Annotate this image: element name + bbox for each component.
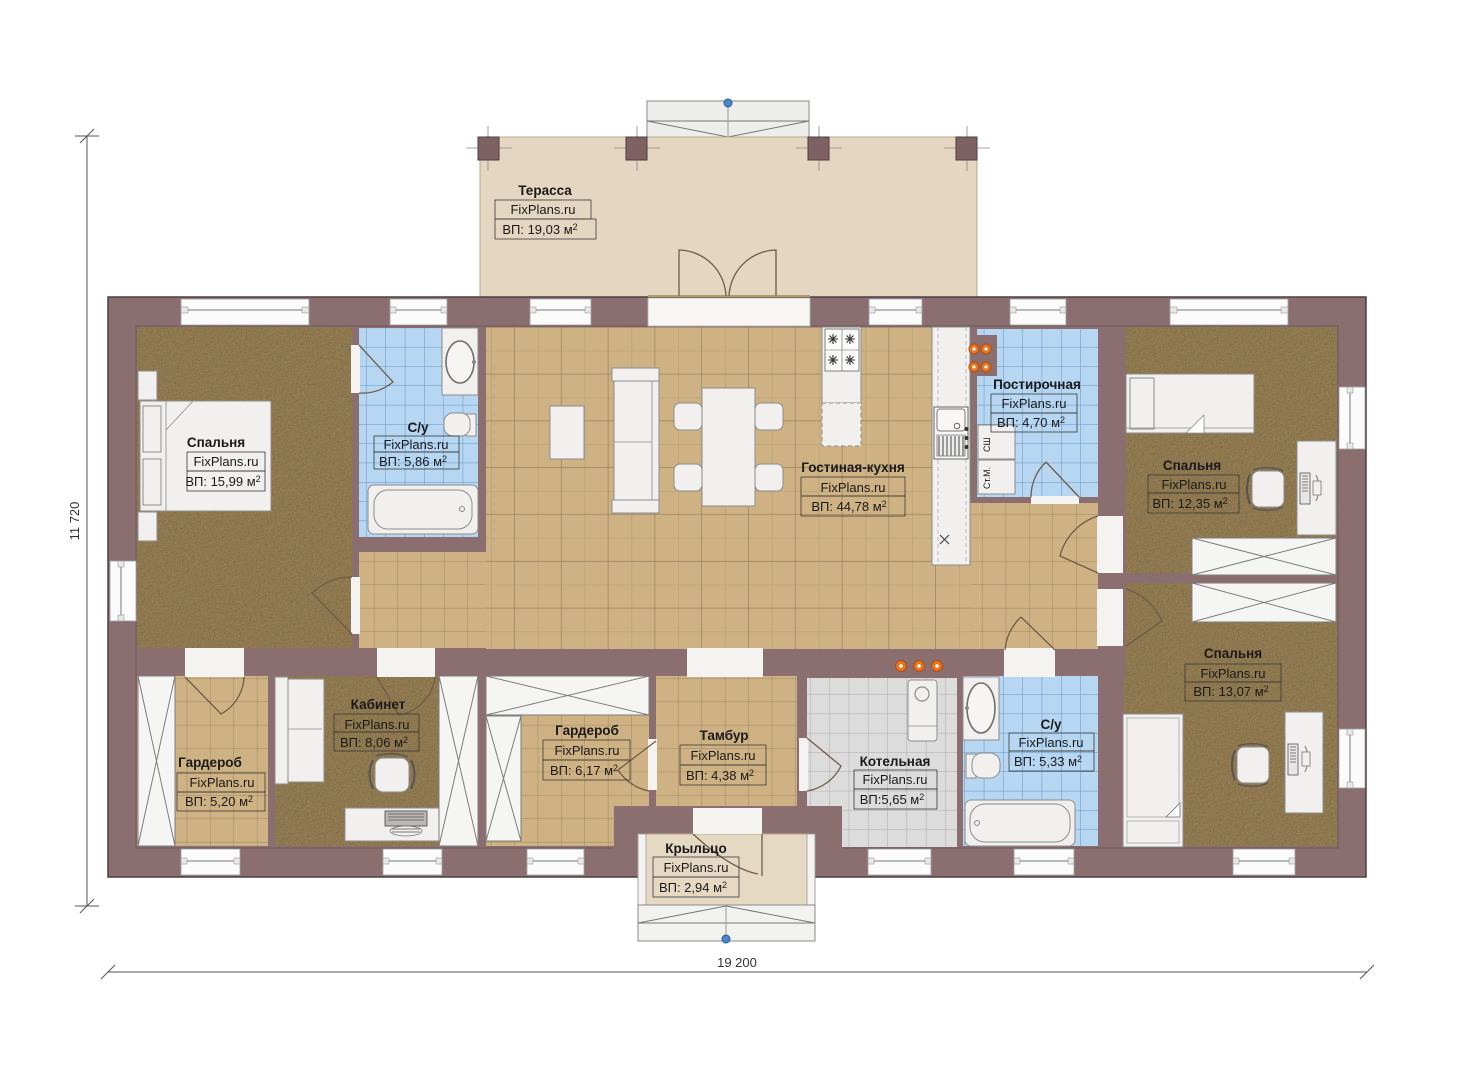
svg-text:FixPlans.ru: FixPlans.ru: [193, 454, 258, 469]
svg-text:FixPlans.ru: FixPlans.ru: [663, 860, 728, 875]
svg-text:ВП:5,65 м2: ВП:5,65 м2: [860, 792, 925, 807]
svg-text:FixPlans.ru: FixPlans.ru: [554, 743, 619, 758]
svg-text:Терасса: Терасса: [518, 183, 572, 198]
svg-text:FixPlans.ru: FixPlans.ru: [383, 437, 448, 452]
svg-text:Кабинет: Кабинет: [351, 697, 406, 712]
svg-text:Крыльцо: Крыльцо: [665, 841, 726, 856]
svg-text:ВП: 4,38 м2: ВП: 4,38 м2: [686, 768, 754, 783]
svg-text:FixPlans.ru: FixPlans.ru: [510, 202, 575, 217]
svg-text:FixPlans.ru: FixPlans.ru: [690, 748, 755, 763]
svg-text:ВП: 2,94 м2: ВП: 2,94 м2: [659, 880, 727, 895]
svg-text:С/у: С/у: [1040, 717, 1062, 732]
svg-text:Гостиная-кухня: Гостиная-кухня: [801, 460, 904, 475]
svg-text:FixPlans.ru: FixPlans.ru: [862, 772, 927, 787]
svg-text:Спальня: Спальня: [1204, 646, 1262, 661]
svg-text:FixPlans.ru: FixPlans.ru: [1161, 477, 1226, 492]
svg-text:ВП: 6,17 м2: ВП: 6,17 м2: [550, 763, 618, 778]
svg-text:ВП: 12,35 м2: ВП: 12,35 м2: [1152, 496, 1227, 511]
svg-text:19 200: 19 200: [717, 955, 757, 970]
svg-text:Постирочная: Постирочная: [993, 377, 1081, 392]
svg-text:ВП: 19,03 м2: ВП: 19,03 м2: [502, 222, 577, 237]
svg-text:ВП: 5,86 м2: ВП: 5,86 м2: [379, 454, 447, 469]
svg-text:ВП: 13,07 м2: ВП: 13,07 м2: [1193, 684, 1268, 699]
svg-text:Тамбур: Тамбур: [700, 728, 749, 743]
svg-text:ВП: 8,06 м2: ВП: 8,06 м2: [340, 735, 408, 750]
svg-text:Гардероб: Гардероб: [178, 755, 242, 770]
svg-text:С/у: С/у: [407, 420, 429, 435]
svg-text:11 720: 11 720: [67, 502, 82, 541]
svg-text:Спальня: Спальня: [187, 435, 245, 450]
svg-text:FixPlans.ru: FixPlans.ru: [1200, 666, 1265, 681]
svg-text:FixPlans.ru: FixPlans.ru: [1001, 396, 1066, 411]
svg-text:ВП: 5,33 м2: ВП: 5,33 м2: [1014, 754, 1082, 769]
svg-text:FixPlans.ru: FixPlans.ru: [344, 717, 409, 732]
svg-text:Спальня: Спальня: [1163, 458, 1221, 473]
svg-text:Гардероб: Гардероб: [555, 723, 619, 738]
svg-text:Котельная: Котельная: [860, 754, 931, 769]
svg-text:ВП: 4,70 м2: ВП: 4,70 м2: [997, 415, 1065, 430]
svg-text:FixPlans.ru: FixPlans.ru: [820, 480, 885, 495]
svg-text:FixPlans.ru: FixPlans.ru: [1018, 735, 1083, 750]
svg-text:ВП: 5,20 м2: ВП: 5,20 м2: [185, 794, 253, 809]
svg-text:Ст.М.: Ст.М.: [982, 467, 992, 489]
svg-text:ВП: 44,78 м2: ВП: 44,78 м2: [811, 499, 886, 514]
svg-text:ВП: 15,99 м2: ВП: 15,99 м2: [185, 474, 260, 489]
svg-text:FixPlans.ru: FixPlans.ru: [189, 775, 254, 790]
svg-text:СШ: СШ: [982, 437, 992, 452]
